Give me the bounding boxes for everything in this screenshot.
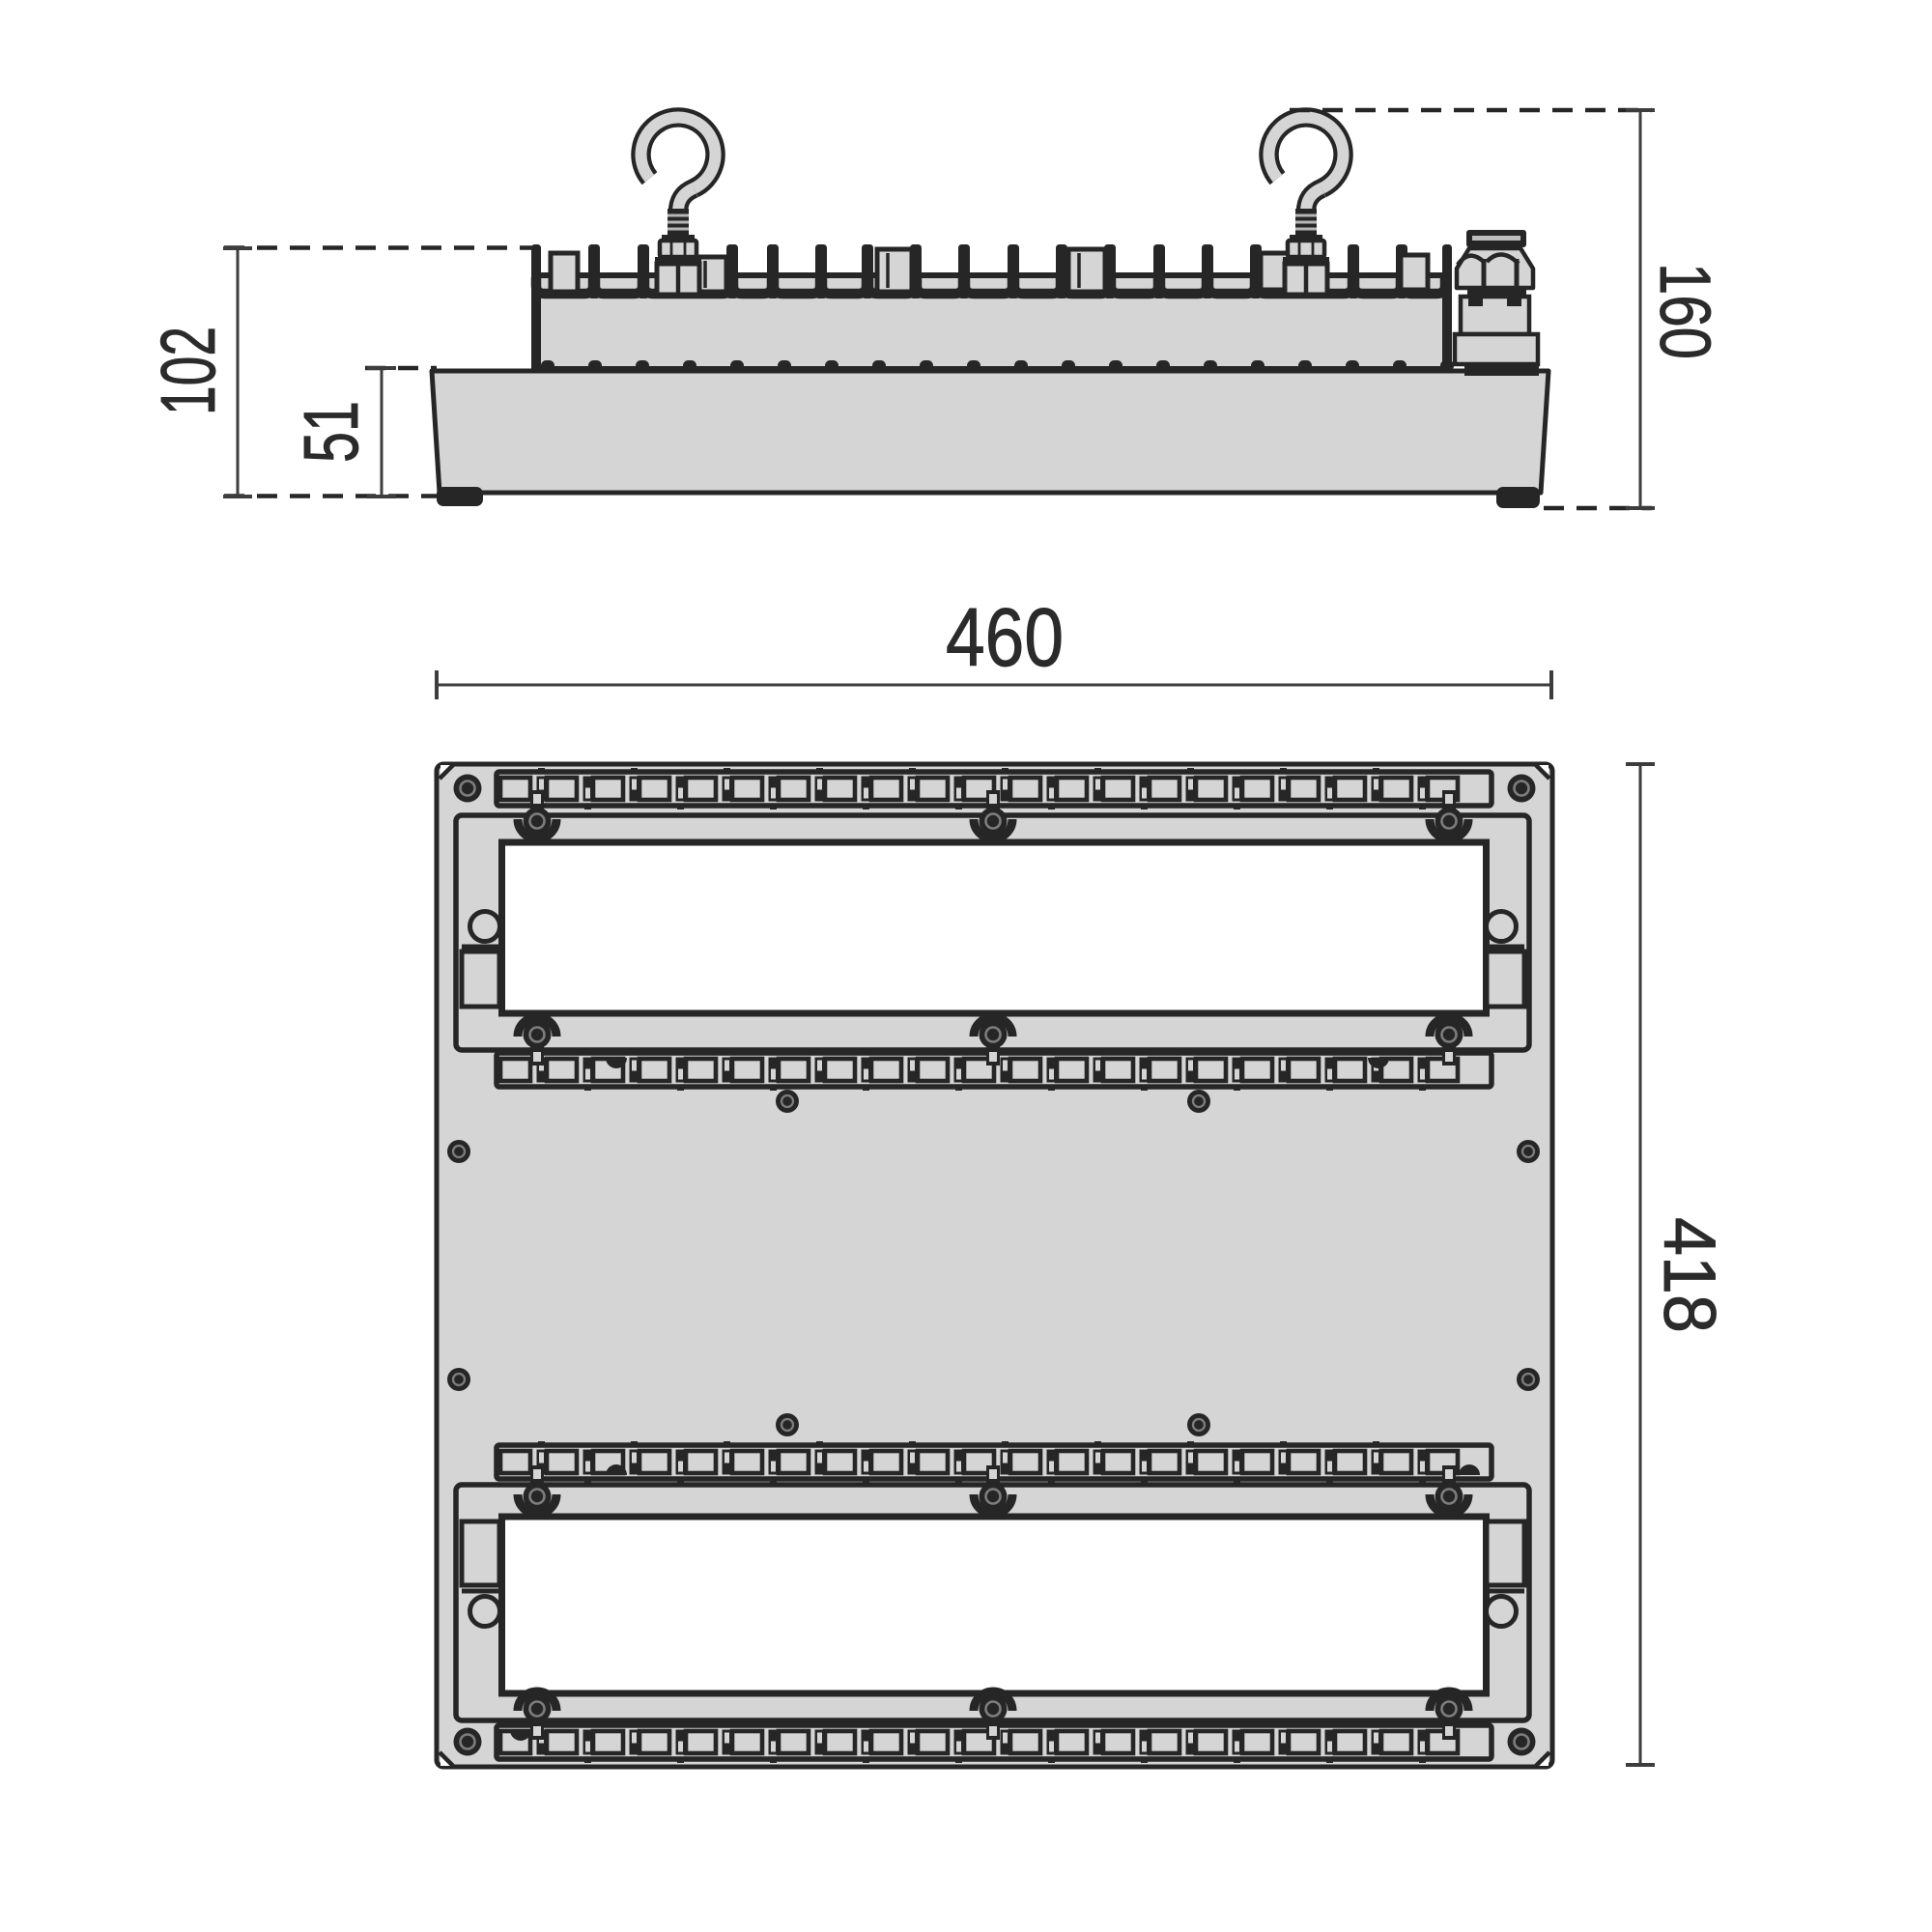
svg-text:160: 160	[1645, 263, 1725, 359]
svg-text:102: 102	[145, 327, 231, 415]
svg-text:460: 460	[946, 592, 1064, 684]
svg-text:418: 418	[1648, 1217, 1730, 1333]
svg-text:51: 51	[288, 401, 374, 463]
